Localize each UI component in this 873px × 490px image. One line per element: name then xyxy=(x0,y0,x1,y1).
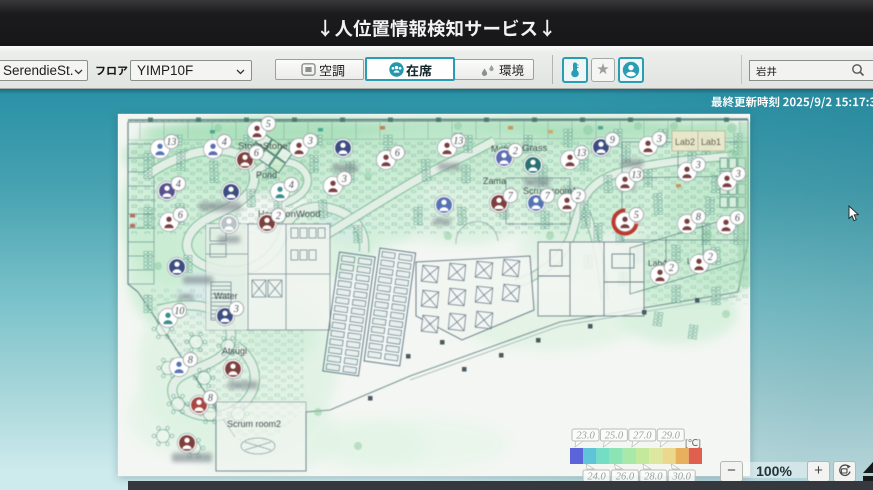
svg-text:Pond: Pond xyxy=(256,170,277,180)
svg-text:6: 6 xyxy=(735,213,740,224)
svg-text:13: 13 xyxy=(576,148,586,159)
svg-text:5: 5 xyxy=(266,119,271,130)
svg-text:9: 9 xyxy=(610,135,615,146)
svg-text:Zama: Zama xyxy=(483,176,506,186)
svg-text:2: 2 xyxy=(276,211,281,222)
svg-text:2: 2 xyxy=(669,263,674,274)
svg-text:oonWood: oonWood xyxy=(280,209,321,220)
svg-text:8: 8 xyxy=(188,355,193,366)
svg-text:25.0: 25.0 xyxy=(605,431,624,442)
svg-text:3: 3 xyxy=(341,174,347,185)
svg-text:5: 5 xyxy=(634,210,639,221)
svg-text:4: 4 xyxy=(176,179,181,190)
svg-text:2: 2 xyxy=(513,146,518,157)
svg-text:Scrum room2: Scrum room2 xyxy=(227,419,281,429)
svg-text:4: 4 xyxy=(222,137,227,148)
svg-text:8: 8 xyxy=(208,393,213,404)
svg-text:6: 6 xyxy=(395,148,400,159)
svg-text:3: 3 xyxy=(656,134,662,145)
svg-text:Water: Water xyxy=(214,291,238,301)
svg-text:2: 2 xyxy=(576,191,581,202)
svg-text:3: 3 xyxy=(735,169,741,180)
svg-text:13: 13 xyxy=(631,170,641,181)
svg-text:2: 2 xyxy=(708,252,713,263)
svg-text:13: 13 xyxy=(453,136,463,147)
svg-text:13: 13 xyxy=(166,137,176,148)
svg-text:3: 3 xyxy=(307,136,313,147)
svg-text:23.0: 23.0 xyxy=(576,431,595,442)
svg-text:Grass: Grass xyxy=(522,143,548,154)
svg-text:6: 6 xyxy=(178,210,183,221)
svg-text:Lab2: Lab2 xyxy=(675,137,695,147)
svg-text:29.0: 29.0 xyxy=(662,431,681,442)
svg-text:3: 3 xyxy=(695,160,701,171)
svg-text:3: 3 xyxy=(233,304,239,315)
svg-text:Lab1: Lab1 xyxy=(701,137,721,147)
svg-text:Atsugi: Atsugi xyxy=(222,346,247,356)
svg-text:27.0: 27.0 xyxy=(633,431,652,442)
svg-text:[℃]: [℃] xyxy=(685,438,701,449)
svg-text:6: 6 xyxy=(254,148,259,159)
svg-text:8: 8 xyxy=(696,212,701,223)
svg-text:10: 10 xyxy=(174,306,184,317)
svg-text:4: 4 xyxy=(289,180,294,191)
